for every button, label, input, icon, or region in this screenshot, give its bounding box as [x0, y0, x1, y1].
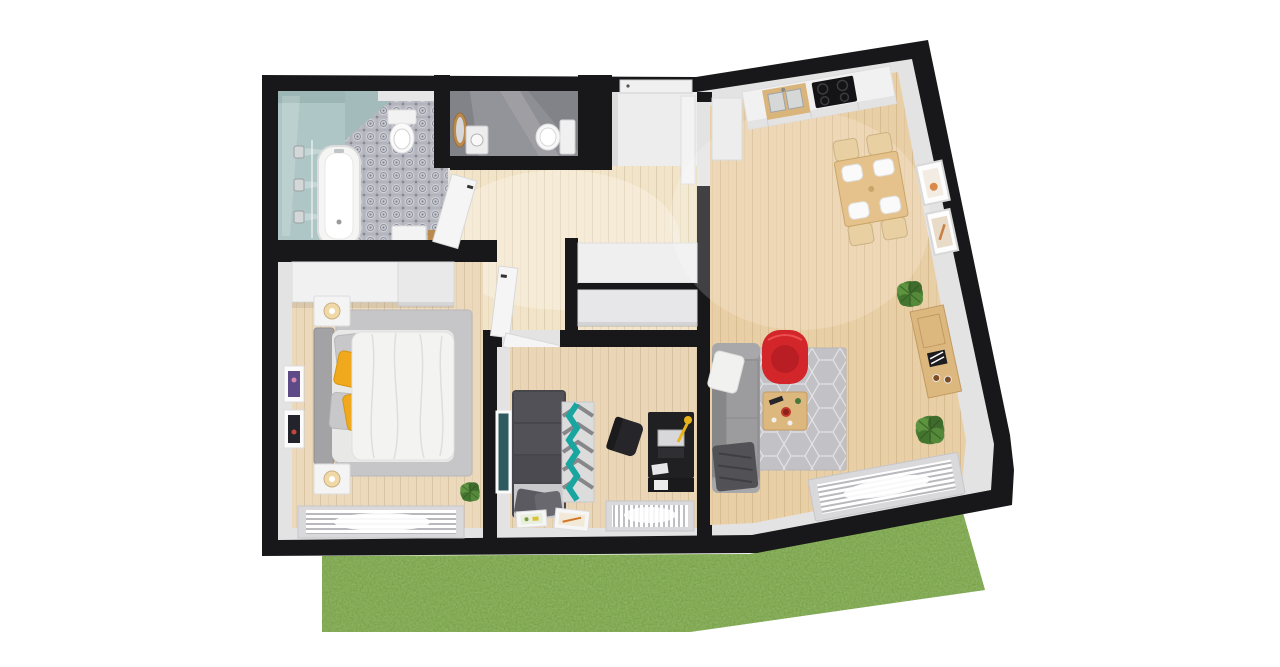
leaning-art-frame: [497, 412, 510, 492]
wc-room: [450, 91, 590, 166]
wall-living-top-jamb: [697, 92, 712, 102]
living-plant-bottom: [916, 416, 945, 445]
tall-cabinet-fridge: [712, 98, 742, 160]
floor-plan-svg: [0, 0, 1280, 667]
wc-washbasin: [466, 126, 488, 154]
bedroom: [284, 262, 483, 538]
printer: [654, 480, 668, 490]
closet-shadow: [578, 322, 697, 327]
office-sofa: [512, 390, 566, 519]
wall-bedroom-office: [483, 334, 497, 540]
mirror-glass: [456, 117, 464, 143]
entry-door-handle: [626, 84, 629, 87]
living-plant-top: [897, 281, 923, 307]
closet-divider: [578, 283, 697, 290]
entry-door: [620, 80, 692, 93]
sheer-curtain: [334, 513, 430, 531]
desk-lamp-head: [684, 416, 692, 424]
double-bed: [314, 328, 454, 464]
nightstand-top: [314, 296, 350, 326]
laptop-keyboard: [658, 448, 684, 458]
office-sheer-curtain: [624, 507, 676, 523]
floor-plan-render: [0, 0, 1280, 667]
plate: [879, 195, 901, 214]
bathtub: [318, 146, 360, 246]
office: [497, 347, 697, 531]
bathroom-toilet: [388, 110, 416, 153]
wall-bathroom-wc: [434, 75, 450, 168]
bedroom-plant: [460, 482, 480, 502]
headboard: [314, 328, 334, 464]
plate: [872, 158, 894, 177]
office-window-radiator: [606, 501, 694, 531]
sink-basin-2: [786, 89, 804, 109]
nightstand-bottom: [314, 464, 350, 494]
bathroom: [278, 91, 448, 246]
chevron-rug: [562, 402, 594, 502]
plate: [848, 201, 870, 220]
coffee-table: [763, 392, 807, 430]
wall-bathroom-bedroom: [262, 240, 497, 262]
mini-plant: [795, 398, 801, 404]
wall-wc-hall: [450, 156, 578, 170]
gray-sofa: [707, 343, 760, 493]
wall-office-top-right: [560, 330, 712, 347]
sofa-dark-throw: [712, 442, 759, 492]
bedroom-window-radiator: [298, 506, 464, 538]
armchair-seat: [771, 345, 799, 373]
sink-basin-1: [768, 92, 786, 112]
wall-wc-entry: [578, 75, 612, 170]
closet-unit-bottom: [578, 290, 697, 326]
wall-closet-left: [565, 238, 578, 338]
tub-faucet: [334, 149, 344, 153]
duvet: [352, 332, 454, 460]
plate: [841, 163, 863, 182]
red-armchair: [762, 330, 808, 384]
